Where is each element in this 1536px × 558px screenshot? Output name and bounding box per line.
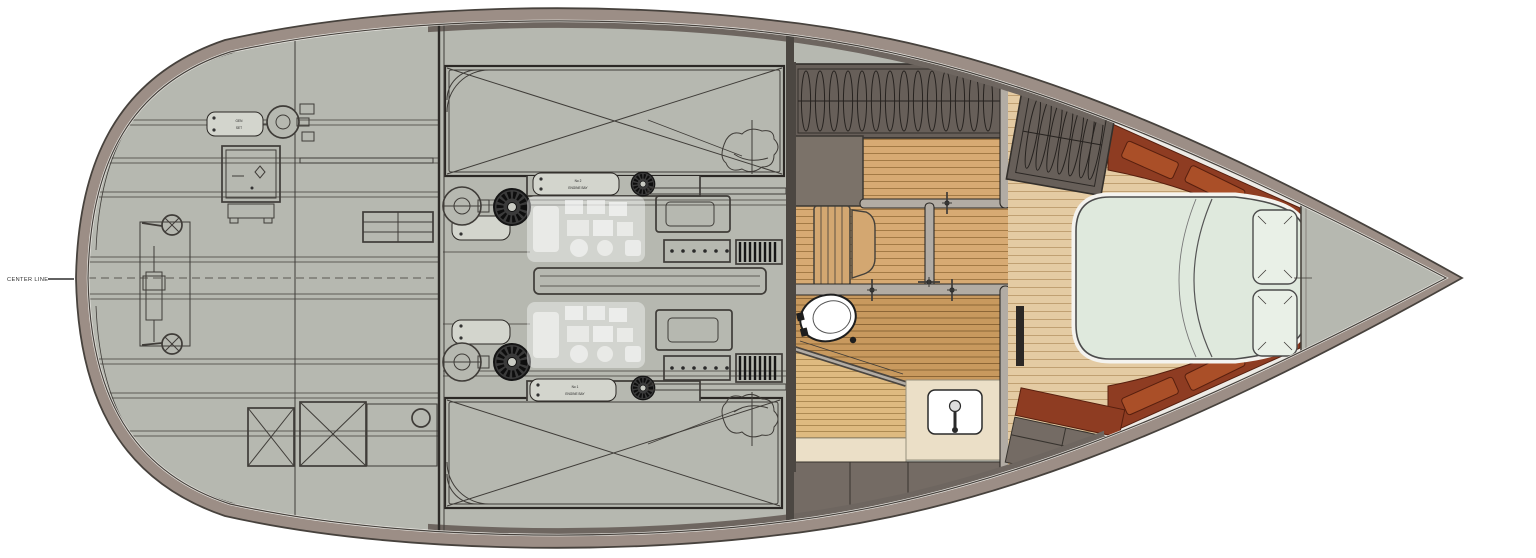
svg-text:No 2: No 2 (575, 179, 582, 183)
bulkhead-engine-cabin (786, 16, 794, 542)
cabinet-box (791, 136, 863, 206)
boat-floor-plan-page: GEN SET (0, 0, 1536, 558)
small-gear-top (631, 172, 654, 195)
boat-floor-plan: GEN SET (0, 0, 1536, 558)
small-gear-bottom (631, 376, 654, 399)
svg-text:ENGINE BAY: ENGINE BAY (565, 392, 585, 396)
pillow-bottom (1253, 290, 1297, 356)
svg-text:ENGINE BAY: ENGINE BAY (568, 186, 588, 190)
engine-bay-plate-bottom: No 1 ENGINE BAY (530, 379, 616, 401)
fan-bottom (494, 344, 530, 380)
access-plate-bottom (452, 320, 510, 344)
head-wall (791, 284, 1015, 295)
engine-bay-plate-top: No 2 ENGINE BAY (533, 173, 619, 195)
main-cabin (789, 62, 1015, 522)
wall-mirror (1016, 306, 1024, 366)
engine-port (527, 196, 645, 262)
stair-console (852, 210, 875, 278)
svg-text:CENTER LINE: CENTER LINE (7, 277, 48, 283)
stern-plate-text-2: SET (236, 126, 242, 130)
svg-text:No 1: No 1 (572, 385, 579, 389)
pillow-top (1253, 210, 1297, 284)
cabin-wall-top (860, 199, 1010, 208)
double-bed (1076, 197, 1304, 359)
stern-plate-text-1: GEN (236, 119, 244, 123)
faucet (950, 401, 961, 412)
center-line-label: CENTER LINE (7, 277, 74, 283)
shower-sill (795, 438, 906, 464)
fan-top (494, 189, 530, 225)
engine-starboard (527, 302, 645, 368)
companionway-stairs (814, 206, 850, 286)
